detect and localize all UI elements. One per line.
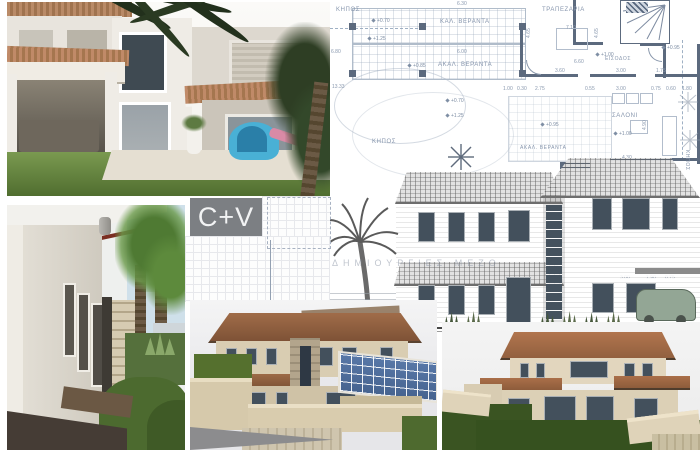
outdoor-furniture: [19, 120, 99, 152]
render-window: [318, 347, 333, 366]
room-label-covered-veranda: ΚΑΛ. ΒΕΡΑΝΤΑ: [440, 19, 490, 25]
room-label-uncovered-veranda: ΑΚΑΛ. ΒΕΡΑΝΤΑ: [438, 62, 492, 68]
door-swing-arc: [526, 60, 541, 75]
plan-wall: [663, 44, 666, 78]
render-window: [520, 363, 529, 378]
wall-pier: [419, 23, 426, 30]
survey-dimension-line: [270, 240, 271, 302]
photo-walkway: [7, 205, 185, 450]
room-label-uncovered-veranda2: ΑΚΑΛ. ΒΕΡΑΝΤΑ: [520, 145, 567, 151]
uncovered-veranda2-area: [508, 96, 612, 162]
armchair: [640, 93, 653, 104]
palm-canopy: [141, 235, 185, 315]
doorway-shadow: [102, 297, 112, 392]
elevation-window: [592, 198, 612, 230]
elevation-window: [418, 212, 435, 242]
elevation-window: [478, 285, 495, 315]
armchair: [626, 93, 639, 104]
render-roof: [500, 332, 676, 360]
room-label-garden-left: ΚΗΠΟΣ: [372, 139, 396, 145]
render-window: [536, 363, 545, 378]
render-window: [266, 348, 277, 365]
elevation-roof-right: [540, 158, 700, 198]
wall-pier: [419, 70, 426, 77]
room-label-living: ΣΑΛΟΝΙ: [612, 113, 638, 119]
wc-hatched-area: [626, 2, 648, 13]
narrow-window: [77, 293, 90, 372]
planter-plant: [181, 114, 207, 132]
logo-text: C+V: [198, 202, 254, 233]
wall-pier: [349, 70, 356, 77]
elevation-roof-left: [395, 172, 563, 204]
kids-slide-arch: [237, 126, 267, 152]
covered-veranda-area: [352, 8, 526, 44]
watermark-text: ΔΗΜΙΟΥΡΓΙΕΣ ΜΕΖΟ: [332, 258, 501, 268]
elevation-window: [662, 198, 678, 230]
plan-wall: [590, 74, 636, 77]
elevation-stair-window: [546, 205, 562, 320]
elevation-window: [448, 212, 465, 242]
architecture-portfolio-collage: ΚΗΠΟΣ ΚΑΛ. ΒΕΡΑΝΤΑ ΤΡΑΠΕΖΑΡΙΑ ΑΚΑΛ. ΒΕΡΑ…: [0, 0, 700, 450]
door-swing-arc: [648, 48, 662, 62]
elevation-door: [506, 277, 531, 328]
dashed-frame: [267, 197, 331, 249]
dining-table: [556, 28, 588, 50]
plan-wall: [522, 74, 578, 77]
boundary-wall: [442, 390, 491, 417]
veranda-column: [105, 72, 117, 156]
elevation-carport-canopy: [635, 268, 700, 274]
boundary-wall: [190, 378, 252, 430]
downlight-cylinder: [99, 217, 111, 235]
elevation-window: [622, 198, 650, 230]
veranda-column: [7, 74, 17, 156]
coffee-table: [630, 120, 648, 134]
lawn-patch: [402, 416, 437, 450]
paver-strip: [652, 434, 700, 450]
mid-roof-right: [614, 376, 690, 390]
logo-badge: C+V: [190, 198, 262, 236]
plan-wall: [520, 24, 523, 77]
plan-tree-symbol: [680, 130, 700, 150]
narrow-window: [63, 283, 76, 357]
elevation-window: [508, 210, 530, 242]
render-house-rear: [442, 322, 700, 450]
render-window: [570, 361, 608, 378]
render-house-front: [190, 300, 437, 450]
armchair: [612, 93, 625, 104]
sofa: [662, 116, 677, 156]
room-label-garden: ΚΗΠΟΣ: [336, 7, 360, 13]
room-label-entrance: ΕΙΣΟΔΟΣ: [605, 56, 631, 62]
room-label-dining: ΤΡΑΠΕΖΑΡΙΑ: [542, 7, 585, 13]
plan-wall: [640, 44, 666, 46]
elevation-window: [478, 212, 495, 242]
elevation-window: [592, 283, 614, 313]
plan-tree-symbol: [678, 92, 698, 112]
elevation-window: [448, 285, 465, 315]
photo-house-exterior: [7, 2, 330, 196]
plan-wall: [655, 74, 700, 77]
wall-pier: [349, 23, 356, 30]
